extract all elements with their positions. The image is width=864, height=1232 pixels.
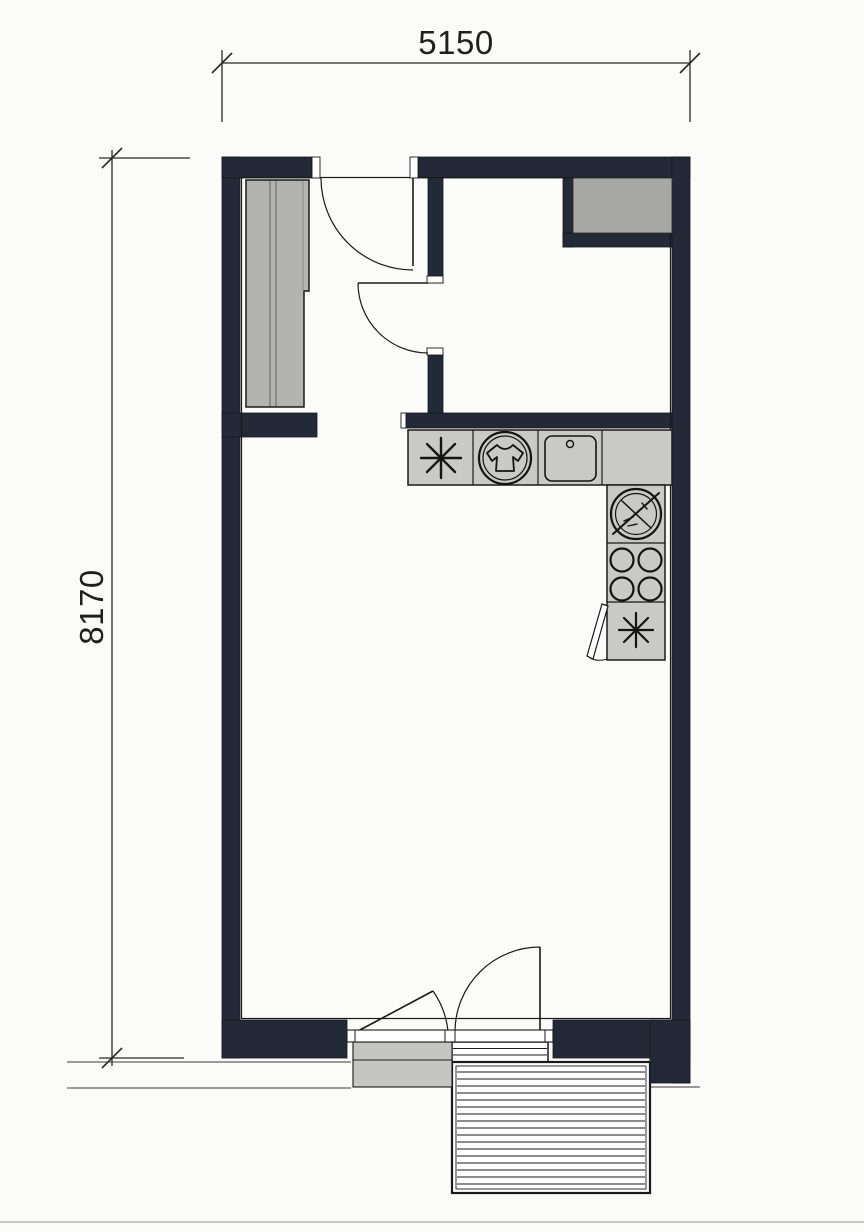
asterisk-appliance-icon (619, 613, 653, 647)
asterisk-appliance-icon (421, 438, 461, 478)
wardrobe-body (246, 180, 309, 407)
door-bathroom (358, 283, 428, 353)
door-top-entry (321, 178, 413, 270)
wardrobe (246, 180, 309, 407)
sill-block (353, 1042, 452, 1087)
interior-wall-vertical-stub (428, 353, 443, 413)
cabinet-flap (587, 604, 608, 660)
deck-step (452, 1042, 548, 1062)
door-frame-cap (410, 157, 418, 178)
wardrobe-wall-stub (222, 413, 317, 437)
wall-end-caps (312, 157, 443, 428)
interior-wall-vertical-upper (428, 178, 443, 283)
top-wall-right-segment (418, 157, 690, 178)
wall-end-cap (401, 413, 406, 428)
bottom-right-wall-stub (650, 1020, 690, 1083)
terrace-deck (452, 1042, 650, 1193)
door-bottom-left (358, 991, 448, 1031)
shaft-wall-horizontal (563, 233, 672, 247)
bottom-wall-left-segment (222, 1020, 347, 1058)
ventilation-shaft (573, 178, 672, 233)
left-dimension-label: 8170 (73, 569, 110, 644)
left-dimension (99, 148, 190, 1068)
threshold-band (347, 1030, 553, 1042)
interior-wall-horizontal (405, 413, 672, 428)
floor-inner-outline (242, 178, 671, 1019)
top-dimension-label: 5150 (418, 24, 493, 61)
door-frame-cap (312, 157, 320, 178)
floor-plan-canvas: 5150 8170 (0, 0, 864, 1232)
doors (321, 178, 540, 1031)
door-frame-cap (427, 276, 443, 283)
right-wall (672, 157, 690, 1083)
door-frame-cap (427, 348, 443, 355)
window-sill (353, 1042, 452, 1087)
floor-plan-svg: 5150 8170 (0, 0, 864, 1232)
top-wall-left-segment (222, 157, 312, 178)
left-wall (222, 157, 240, 1058)
